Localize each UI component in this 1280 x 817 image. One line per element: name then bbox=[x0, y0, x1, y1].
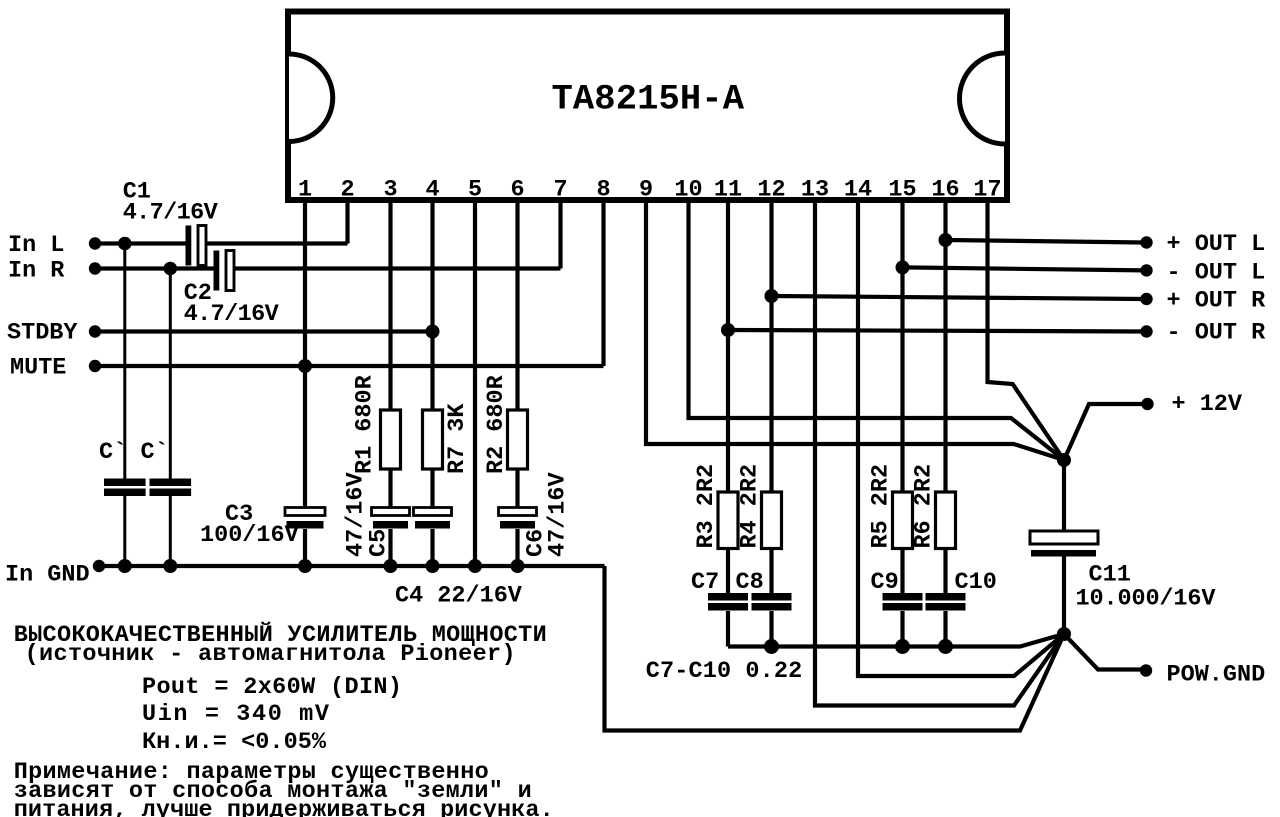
svg-text:+ 12V: + 12V bbox=[1172, 391, 1243, 418]
svg-text:C5: C5 bbox=[366, 529, 393, 557]
svg-text:16: 16 bbox=[931, 177, 959, 204]
svg-text:13: 13 bbox=[801, 177, 829, 204]
svg-text:In GND: In GND bbox=[5, 562, 90, 589]
svg-text:питания, лучше придерживаться: питания, лучше придерживаться рисунка. bbox=[14, 797, 554, 817]
svg-text:In L: In L bbox=[8, 232, 64, 259]
svg-text:R4 2R2: R4 2R2 bbox=[737, 464, 764, 549]
svg-text:2: 2 bbox=[340, 177, 354, 204]
svg-text:6: 6 bbox=[510, 177, 524, 204]
svg-text:10.000/16V: 10.000/16V bbox=[1076, 586, 1217, 613]
svg-text:+ OUT R: + OUT R bbox=[1167, 288, 1267, 315]
svg-text:17: 17 bbox=[973, 177, 1001, 204]
svg-text:C`: C` bbox=[99, 439, 127, 466]
svg-text:- OUT L: - OUT L bbox=[1167, 259, 1266, 286]
svg-text:Кн.и.= <0.05%: Кн.и.= <0.05% bbox=[142, 729, 327, 756]
svg-text:5: 5 bbox=[468, 177, 482, 204]
svg-text:R1 680R: R1 680R bbox=[352, 374, 379, 474]
svg-text:C9: C9 bbox=[871, 569, 899, 596]
svg-text:R6 2R2: R6 2R2 bbox=[911, 464, 938, 549]
svg-text:C7: C7 bbox=[691, 569, 719, 596]
svg-text:8: 8 bbox=[596, 177, 610, 204]
svg-text:3: 3 bbox=[383, 177, 397, 204]
svg-text:14: 14 bbox=[844, 177, 872, 204]
svg-text:47/16V: 47/16V bbox=[545, 472, 572, 557]
svg-text:R5 2R2: R5 2R2 bbox=[868, 464, 895, 549]
svg-text:9: 9 bbox=[639, 177, 653, 204]
svg-text:R3 2R2: R3 2R2 bbox=[693, 464, 720, 549]
svg-text:Uin = 340 mV: Uin = 340 mV bbox=[142, 701, 330, 728]
svg-text:Pout = 2x60W (DIN): Pout = 2x60W (DIN) bbox=[142, 674, 402, 701]
svg-text:R2 680R: R2 680R bbox=[483, 374, 510, 474]
svg-text:C7-C10 0.22: C7-C10 0.22 bbox=[646, 658, 802, 685]
svg-text:- OUT R: - OUT R bbox=[1167, 320, 1267, 347]
svg-text:R7 3K: R7 3K bbox=[444, 403, 471, 474]
svg-text:10: 10 bbox=[674, 177, 702, 204]
svg-text:TA8215H-A: TA8215H-A bbox=[552, 79, 745, 120]
svg-text:1: 1 bbox=[298, 177, 312, 204]
svg-text:C11: C11 bbox=[1089, 562, 1131, 589]
svg-text:C`: C` bbox=[141, 439, 169, 466]
svg-text:POW.GND: POW.GND bbox=[1167, 662, 1266, 689]
svg-text:12: 12 bbox=[757, 177, 785, 204]
svg-text:C10: C10 bbox=[955, 569, 997, 596]
svg-text:In R: In R bbox=[8, 258, 65, 285]
svg-text:(источник - автомагнитола Pion: (источник - автомагнитола Pioneer) bbox=[25, 641, 516, 668]
svg-text:4.7/16V: 4.7/16V bbox=[123, 200, 219, 227]
svg-text:15: 15 bbox=[888, 177, 916, 204]
svg-text:100/16V: 100/16V bbox=[200, 522, 300, 549]
svg-text:7: 7 bbox=[553, 177, 567, 204]
svg-text:+ OUT L: + OUT L bbox=[1167, 231, 1266, 258]
svg-text:STDBY: STDBY bbox=[7, 320, 78, 347]
svg-text:C4 22/16V: C4 22/16V bbox=[395, 583, 523, 610]
svg-text:MUTE: MUTE bbox=[10, 355, 66, 382]
svg-text:11: 11 bbox=[714, 177, 742, 204]
svg-text:4.7/16V: 4.7/16V bbox=[184, 301, 280, 328]
svg-text:4: 4 bbox=[425, 177, 439, 204]
svg-text:C8: C8 bbox=[736, 569, 764, 596]
